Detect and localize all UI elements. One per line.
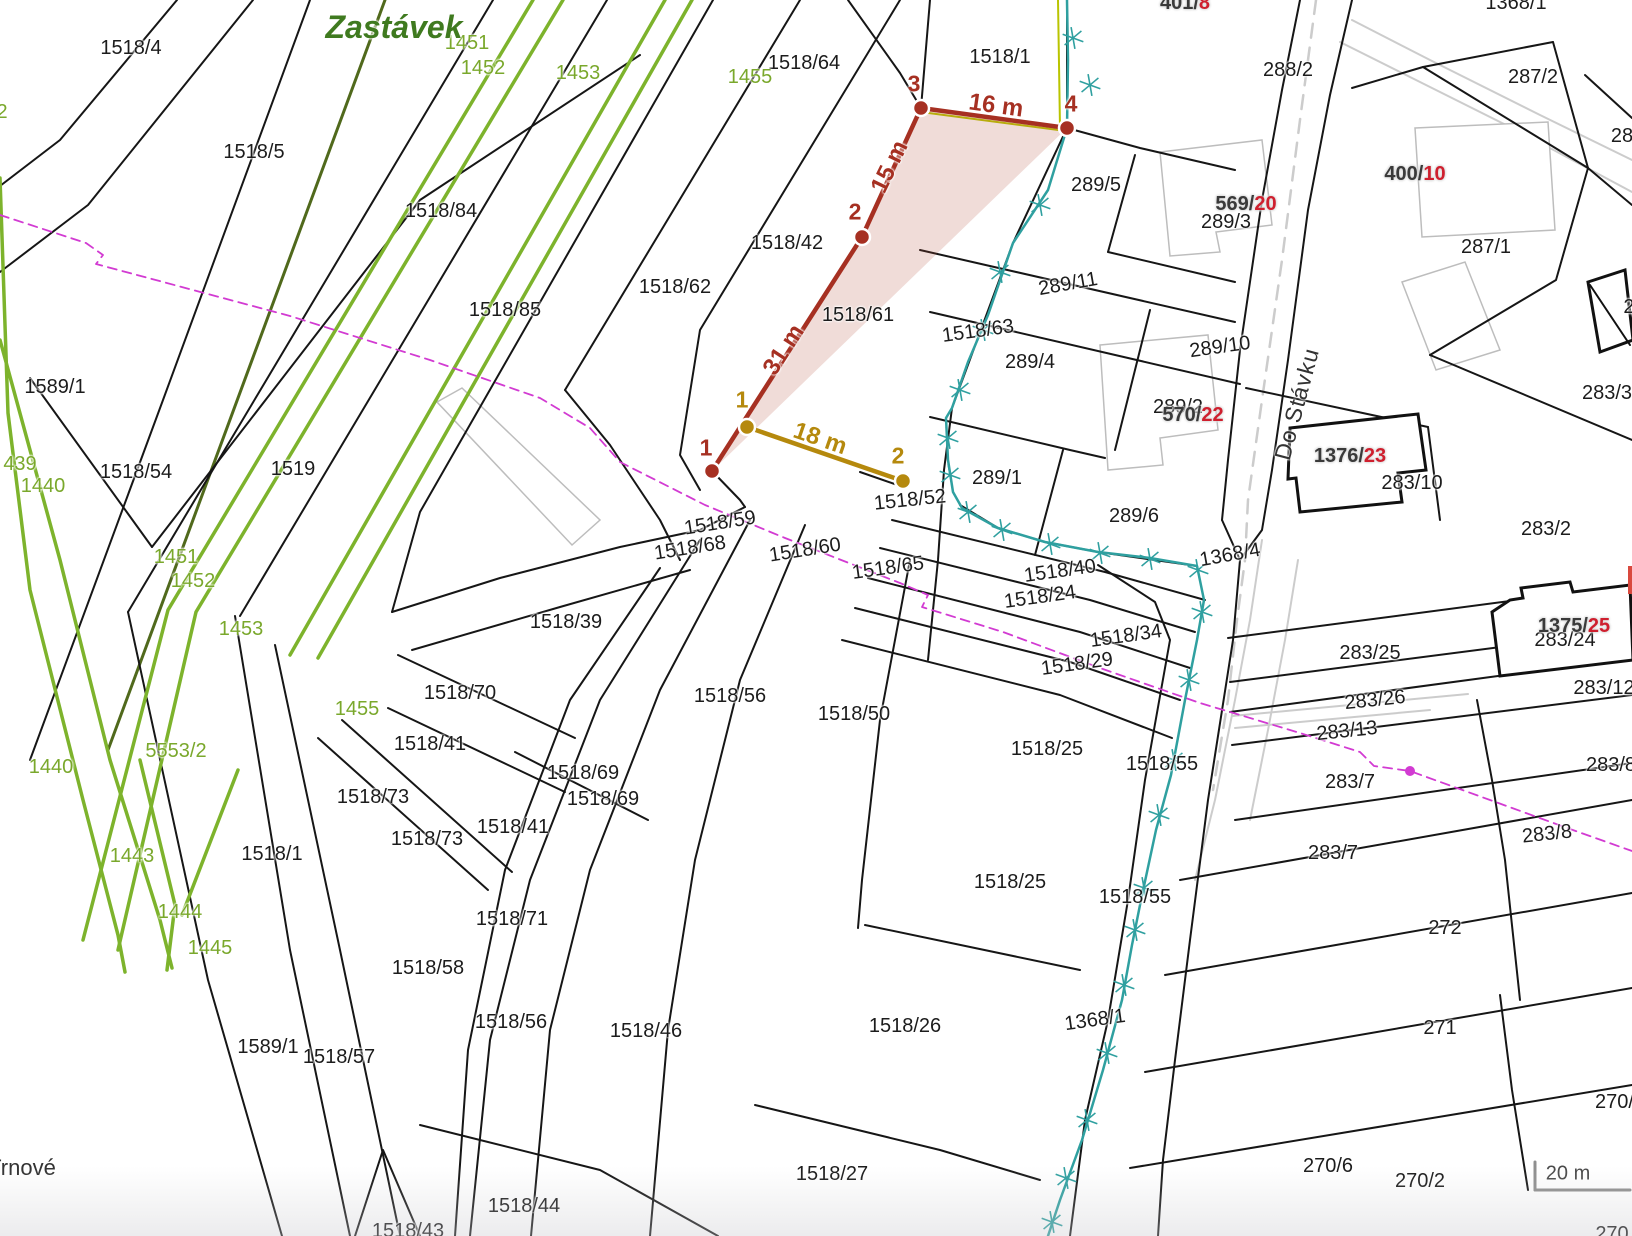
measured-area-fill — [712, 108, 1067, 471]
parcel-boundary-line — [1108, 155, 1135, 252]
green-parcel-line — [290, 0, 665, 655]
parcel-boundary-line — [420, 1125, 718, 1236]
green-parcel-line — [0, 340, 172, 968]
measure-point[interactable] — [704, 463, 720, 479]
parcel-boundary-line — [30, 0, 310, 760]
parcel-boundary-line — [412, 570, 690, 650]
yellowgreen-utility-line — [1058, 0, 1060, 128]
parcel-boundary-line — [1232, 695, 1632, 745]
parcel-boundary-line — [1430, 355, 1632, 440]
parcel-boundary-line — [921, 0, 930, 108]
building-outline — [1402, 262, 1500, 370]
green-parcel-line — [182, 770, 238, 915]
green-parcel-line — [118, 0, 563, 950]
parcel-boundary-line — [1588, 168, 1632, 205]
clipped-red-feature — [1628, 566, 1632, 594]
map-viewport[interactable]: 1518/41518/51518/841518/851518/641518/12… — [0, 0, 1632, 1236]
parcel-boundary-line — [1145, 988, 1632, 1072]
parcel-boundary-line — [515, 752, 648, 820]
parcel-boundary-line — [930, 417, 1105, 458]
parcel-boundary-line — [848, 0, 921, 108]
measure-point[interactable] — [854, 229, 870, 245]
parcel-boundary-line — [235, 616, 350, 1236]
parcel-boundary-line — [128, 612, 282, 1236]
parcel-boundary-line — [1428, 427, 1440, 520]
parcel-boundary-line — [455, 568, 660, 1236]
parcel-boundary-line — [1165, 893, 1632, 975]
parcel-boundary-line — [275, 645, 400, 1236]
parcel-boundary-line — [355, 1150, 420, 1236]
building-footprint — [1288, 414, 1426, 512]
parcel-boundary-line — [128, 0, 493, 612]
cadastral-map-canvas[interactable] — [0, 0, 1632, 1236]
parcel-boundary-line — [318, 738, 488, 890]
magenta-node-dot — [1405, 766, 1415, 776]
measure-point[interactable] — [1059, 120, 1075, 136]
parcel-boundary-line — [0, 0, 253, 272]
parcel-boundary-line — [1500, 995, 1528, 1190]
building-outline — [437, 388, 600, 545]
scale-bar-label: 20 m — [1546, 1163, 1590, 1186]
parcel-boundary-line — [928, 0, 1067, 660]
parcel-boundary-line — [650, 525, 805, 1236]
road-edge-line — [1250, 560, 1298, 820]
parcel-boundary-line — [565, 0, 800, 390]
parcel-boundary-line — [1070, 565, 1170, 1236]
teal-star-marker — [1082, 78, 1099, 92]
parcel-boundary-line — [920, 250, 1235, 322]
parcel-boundary-line — [1180, 800, 1632, 880]
road-edge-line — [1232, 694, 1468, 716]
parcel-boundary-line — [342, 720, 512, 872]
parcel-boundary-line — [1585, 75, 1632, 118]
parcel-boundary-line — [755, 1105, 1040, 1180]
parcel-boundary-line — [1352, 42, 1553, 88]
vegetation-boundary-line — [108, 0, 385, 750]
building-outline — [1415, 122, 1555, 237]
parcel-boundary-line — [855, 608, 1180, 700]
measure-point[interactable] — [895, 473, 911, 489]
parcel-boundary-line — [1130, 1085, 1632, 1168]
building-footprint — [1492, 582, 1632, 676]
parcel-boundary-line — [865, 925, 1080, 970]
parcel-boundary-line — [1477, 700, 1520, 1000]
measure-line-yellow[interactable] — [747, 427, 903, 481]
measure-point[interactable] — [913, 100, 929, 116]
green-parcel-line — [140, 760, 175, 970]
parcel-boundary-line — [531, 520, 750, 1236]
measure-point[interactable] — [739, 419, 755, 435]
parcel-boundary-line — [0, 0, 177, 186]
